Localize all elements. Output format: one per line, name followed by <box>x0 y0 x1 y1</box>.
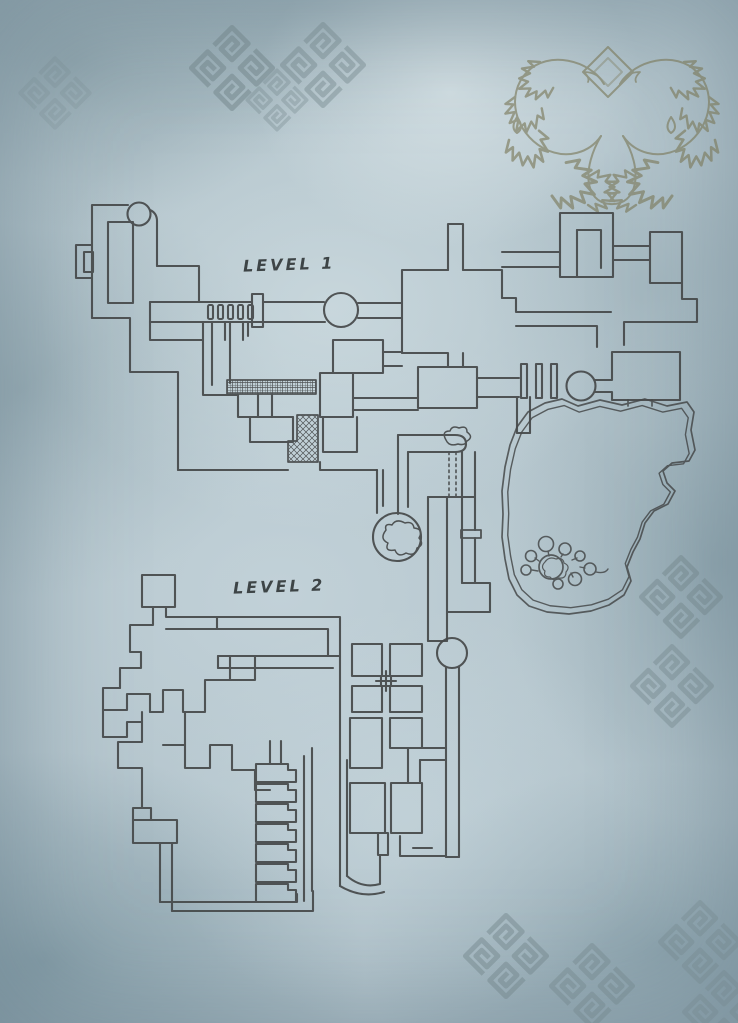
emblem-serpents <box>496 47 727 219</box>
level1-floorplan <box>76 203 697 471</box>
map-canvas: LEVEL 1 LEVEL 2 <box>0 0 738 1023</box>
map-svg <box>0 0 738 1023</box>
level1-central-passages <box>373 427 490 641</box>
level-2-label: LEVEL 2 <box>233 575 326 597</box>
level-1-label: LEVEL 1 <box>243 253 336 275</box>
level2-floorplan <box>103 575 467 911</box>
